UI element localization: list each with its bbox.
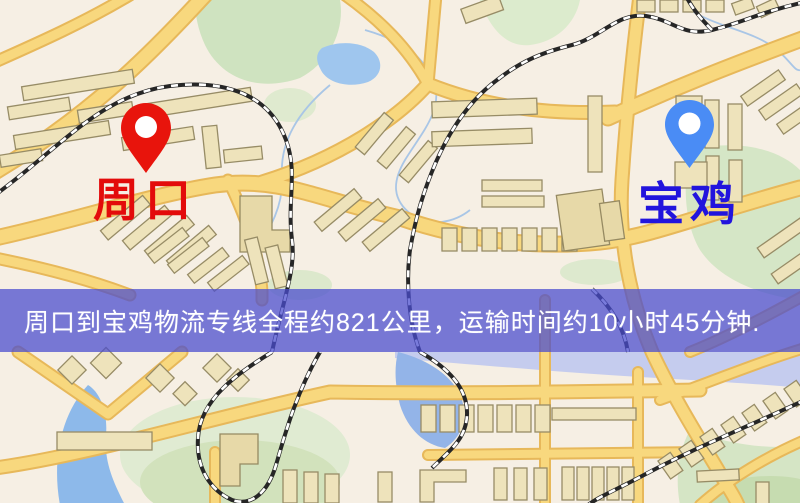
location-pin-icon bbox=[662, 98, 717, 170]
map-canvas bbox=[0, 0, 800, 503]
route-banner: 周口到宝鸡物流专线全程约821公里，运输时间约10小时45分钟. bbox=[0, 289, 800, 352]
destination-pin[interactable] bbox=[662, 98, 717, 170]
map-view[interactable]: 周口 宝鸡 周口到宝鸡物流专线全程约821公里，运输时间约10小时45分钟. bbox=[0, 0, 800, 503]
destination-label: 宝鸡 bbox=[638, 181, 742, 227]
origin-pin[interactable] bbox=[118, 101, 174, 175]
route-banner-text: 周口到宝鸡物流专线全程约821公里，运输时间约10小时45分钟. bbox=[0, 303, 760, 339]
location-pin-icon bbox=[118, 101, 174, 175]
buildings bbox=[0, 0, 800, 503]
origin-label: 周口 bbox=[93, 177, 197, 223]
